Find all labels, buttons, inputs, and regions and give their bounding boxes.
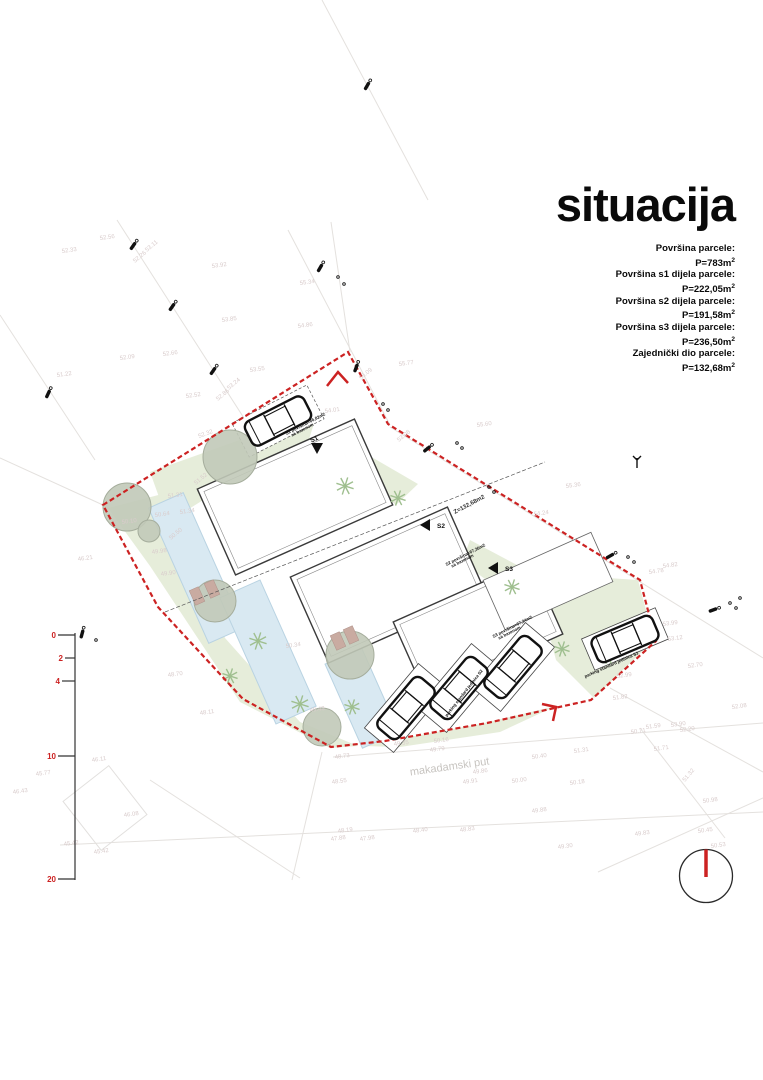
- pole-ring: [321, 260, 325, 264]
- pole-ring: [135, 239, 139, 243]
- area-value: P=191,58m2: [616, 307, 735, 322]
- survey-dot-icon: [627, 556, 630, 559]
- survey-dot-icon: [461, 447, 464, 450]
- elevation-label: 49.79: [429, 746, 445, 754]
- elevation-label: 53.99: [662, 620, 678, 628]
- elevation-label: 48.40: [412, 827, 428, 835]
- pole-bar: [708, 607, 718, 613]
- elevation-label: 52.56: [99, 234, 115, 242]
- elevation-label: 53.11: [144, 239, 160, 253]
- scale-mark-label: 20: [47, 875, 56, 884]
- north-indicator: [680, 850, 733, 903]
- survey-dot-icon: [633, 561, 636, 564]
- elevation-label: 50.00: [511, 777, 527, 785]
- survey-dot-icon: [337, 276, 340, 279]
- survey-dot-icon: [739, 597, 742, 600]
- elevation-label: 49.88: [531, 807, 547, 815]
- area-label: Površina parcele:: [616, 243, 735, 255]
- road-line: [292, 752, 322, 880]
- antenna-symbol-icon: [633, 456, 641, 468]
- elevation-label: 55.34: [299, 279, 315, 287]
- pole-ring: [215, 364, 219, 368]
- road-line: [0, 315, 95, 460]
- pole-ring: [430, 443, 434, 447]
- road-line: [331, 222, 350, 352]
- elevation-label: 55.77: [398, 360, 414, 368]
- elevation-label: 50.18: [569, 779, 585, 787]
- elevation-label: 49.30: [557, 843, 573, 851]
- elevation-label: 45.42: [93, 848, 109, 856]
- elevation-label: 50.16: [433, 737, 449, 745]
- drawing-sheet: 52.3352.5653.1152.2653.9255.3453.8554.86…: [0, 0, 763, 1080]
- plan-label: S3: [505, 566, 513, 573]
- tree: [303, 708, 341, 746]
- elevation-label: 52.99: [616, 672, 632, 680]
- pole-ring: [356, 360, 360, 364]
- elevation-label: 52.66: [162, 350, 178, 358]
- road-line: [0, 458, 103, 505]
- pole-ring: [368, 78, 372, 82]
- area-value: P=222,05m2: [616, 281, 735, 296]
- elevation-label: 46.11: [91, 756, 107, 764]
- elevation-label: 51.22: [56, 371, 72, 379]
- pole-ring: [49, 386, 53, 390]
- area-label: Površina s1 dijela parcele:: [616, 269, 735, 281]
- elevation-label: 50.45: [697, 827, 713, 835]
- road-line: [322, 0, 428, 200]
- elevation-label: 45.77: [35, 770, 51, 778]
- road-line: [117, 220, 258, 440]
- elevation-label: 52.52: [185, 392, 201, 400]
- area-value: P=783m2: [616, 255, 735, 270]
- elevation-label: 46.43: [12, 788, 28, 796]
- elevation-label: 48.11: [199, 709, 215, 717]
- elevation-label: 46.08: [123, 811, 139, 819]
- elevation-label: 53.85: [221, 316, 237, 324]
- elevation-label: 52.33: [61, 247, 77, 255]
- scale-mark-label: 4: [56, 677, 61, 686]
- plan-label: S2: [437, 523, 445, 530]
- elevation-label: 54.01: [324, 407, 340, 415]
- elevation-label: 47.88: [330, 835, 346, 843]
- elevation-label: 50.40: [531, 753, 547, 761]
- elevation-label: 48.19: [337, 827, 353, 835]
- pole-bar: [605, 552, 614, 559]
- survey-pole-icon: [708, 606, 721, 613]
- area-label: Površina s3 dijela parcele:: [616, 322, 735, 334]
- pole-bar: [79, 629, 85, 639]
- elevation-label: 52.08: [731, 703, 747, 711]
- site-plan-drawing: 52.3352.5653.1152.2653.9255.3453.8554.86…: [0, 0, 763, 1080]
- elevation-label: 51.59: [645, 723, 661, 731]
- area-value: P=236,50m2: [616, 334, 735, 349]
- elevation-label: 50.71: [630, 728, 646, 736]
- plan-label: Z=132,68m2: [453, 494, 487, 516]
- elevation-label: 48.70: [167, 671, 183, 679]
- pole-ring: [614, 551, 618, 555]
- elevation-label: 51.82: [612, 694, 628, 702]
- survey-dot-icon: [456, 442, 459, 445]
- elevation-label: 52.70: [687, 662, 703, 670]
- road-line: [150, 780, 300, 878]
- elevation-label: 53.12: [667, 635, 683, 643]
- area-label: Površina s2 dijela parcele:: [616, 296, 735, 308]
- area-value: P=132,68m2: [616, 360, 735, 375]
- survey-pole-icon: [605, 551, 617, 560]
- survey-dot-icon: [729, 602, 732, 605]
- survey-dot-icon: [95, 639, 98, 642]
- elevation-label: 53.24: [226, 377, 242, 392]
- survey-pole-icon: [316, 260, 325, 272]
- elevation-label: 50.98: [702, 797, 718, 805]
- tree: [138, 520, 160, 542]
- elevation-label: 53.55: [249, 366, 265, 374]
- elevation-label: 47.98: [359, 835, 375, 843]
- pole-bar: [316, 263, 323, 272]
- elevation-label: 51.32: [682, 767, 697, 783]
- pole-bar: [353, 363, 359, 373]
- elevation-label: 54.24: [533, 510, 549, 518]
- elevation-label: 50.34: [285, 642, 301, 650]
- elevation-label: 49.83: [634, 830, 650, 838]
- survey-dot-icon: [735, 607, 738, 610]
- elevation-label: 54.82: [662, 562, 678, 570]
- elevation-label: 48.83: [459, 826, 475, 834]
- elevation-label: 51.71: [653, 745, 669, 753]
- elevation-label: 54.86: [297, 322, 313, 330]
- elevation-label: 52.09: [119, 354, 135, 362]
- pole-ring: [174, 300, 178, 304]
- elevation-label: 55.60: [476, 421, 492, 429]
- elevation-label: 50.53: [710, 842, 726, 850]
- survey-dot-icon: [382, 403, 385, 406]
- elevation-label: 54.78: [648, 568, 664, 576]
- neighbor-layer: [63, 766, 147, 851]
- pole-ring: [82, 626, 85, 629]
- elevation-label: 48.55: [331, 778, 347, 786]
- survey-dot-icon: [343, 283, 346, 286]
- elevation-label: 53.92: [211, 262, 227, 270]
- road-layer: [0, 0, 763, 880]
- elevation-label: 49.35: [393, 740, 409, 748]
- scale-mark-label: 0: [52, 631, 57, 640]
- area-label: Zajednički dio parcele:: [616, 348, 735, 360]
- area-summary: Površina parcele: P=783m2 Površina s1 di…: [616, 243, 735, 375]
- survey-dot-icon: [493, 491, 496, 494]
- survey-pole-icon: [79, 626, 85, 639]
- survey-pole-icon: [45, 386, 53, 399]
- elevation-label: 45.42: [63, 840, 79, 848]
- neighbor-building: [63, 766, 147, 851]
- scale-mark-label: 2: [59, 654, 64, 663]
- pole-ring: [717, 606, 721, 610]
- elevation-label: 55.36: [565, 482, 581, 490]
- entrance-marker-icon: [327, 372, 348, 386]
- entrance-marker-icon: [542, 704, 556, 721]
- pole-bar: [45, 389, 52, 399]
- page-title: situacija: [556, 180, 735, 230]
- scale-mark-label: 10: [47, 752, 56, 761]
- elevation-label: 48.73: [334, 753, 350, 761]
- road-line: [598, 798, 763, 872]
- survey-dot-icon: [387, 409, 390, 412]
- elevation-label: 49.91: [462, 778, 478, 786]
- elevation-label: 51.31: [573, 747, 589, 755]
- elevation-label: 46.21: [77, 555, 93, 563]
